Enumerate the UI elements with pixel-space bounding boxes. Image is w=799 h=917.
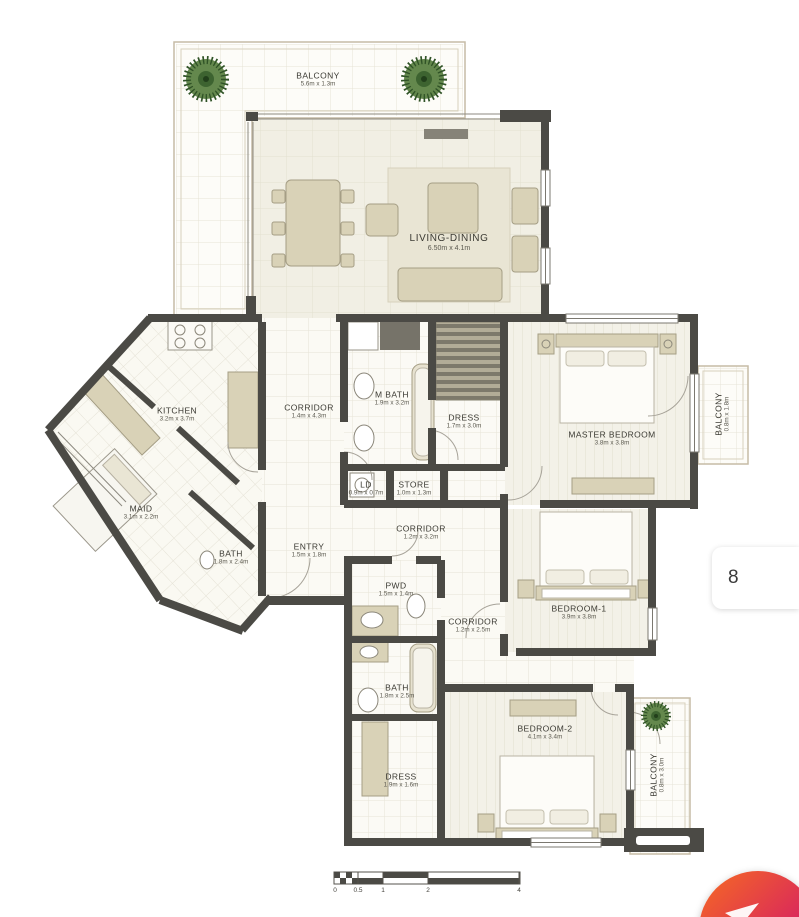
scale-tick: 1 [381,887,385,894]
scale-tick: 4 [517,887,521,894]
rooms-layer [46,44,748,854]
paper-plane-icon [699,871,799,917]
page-number-card: 8 [712,547,799,609]
scale-tick: 0.5 [353,887,362,894]
plant-icon [643,703,669,729]
fab-button[interactable] [699,871,799,917]
plant-icon [404,59,444,99]
scale-tick: 0 [333,887,337,894]
scale-tick: 2 [426,887,430,894]
page-number: 8 [712,567,739,589]
scale-bar-graphic [334,872,520,884]
floor-plan-graphic [0,0,799,917]
floorplan-page: BALCONY 5.6m x 1.3m LIVING-DINING 6.50m … [0,0,799,917]
plant-icon [186,59,226,99]
